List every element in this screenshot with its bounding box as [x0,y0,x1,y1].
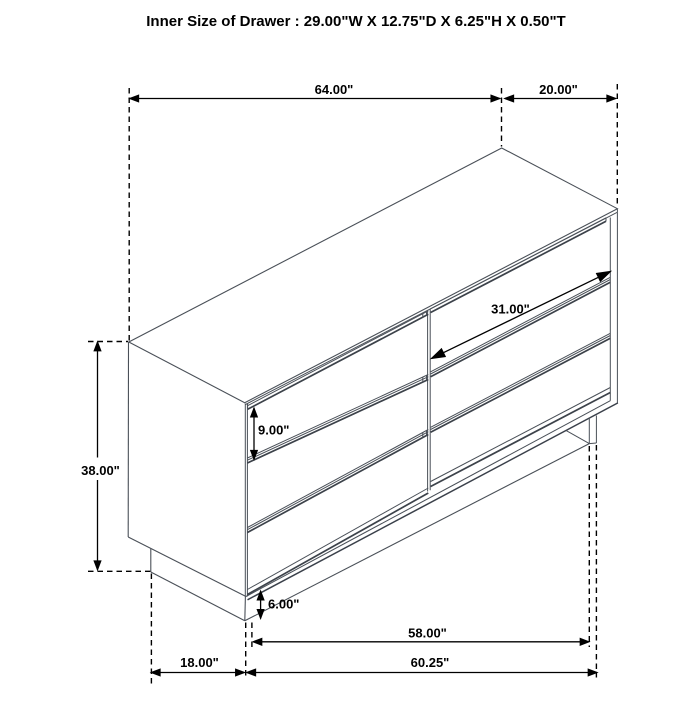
svg-text:20.00": 20.00" [539,82,578,97]
svg-text:Inner Size of Drawer : 29.00"W: Inner Size of Drawer : 29.00"W X 12.75"D… [146,13,565,30]
svg-text:38.00": 38.00" [81,463,120,478]
svg-text:18.00": 18.00" [180,655,219,670]
svg-text:6.00": 6.00" [268,597,299,612]
svg-text:64.00": 64.00" [315,82,354,97]
svg-text:58.00": 58.00" [408,626,447,641]
svg-text:60.25": 60.25" [411,655,450,670]
svg-text:9.00": 9.00" [258,423,289,438]
svg-text:31.00": 31.00" [491,302,530,317]
